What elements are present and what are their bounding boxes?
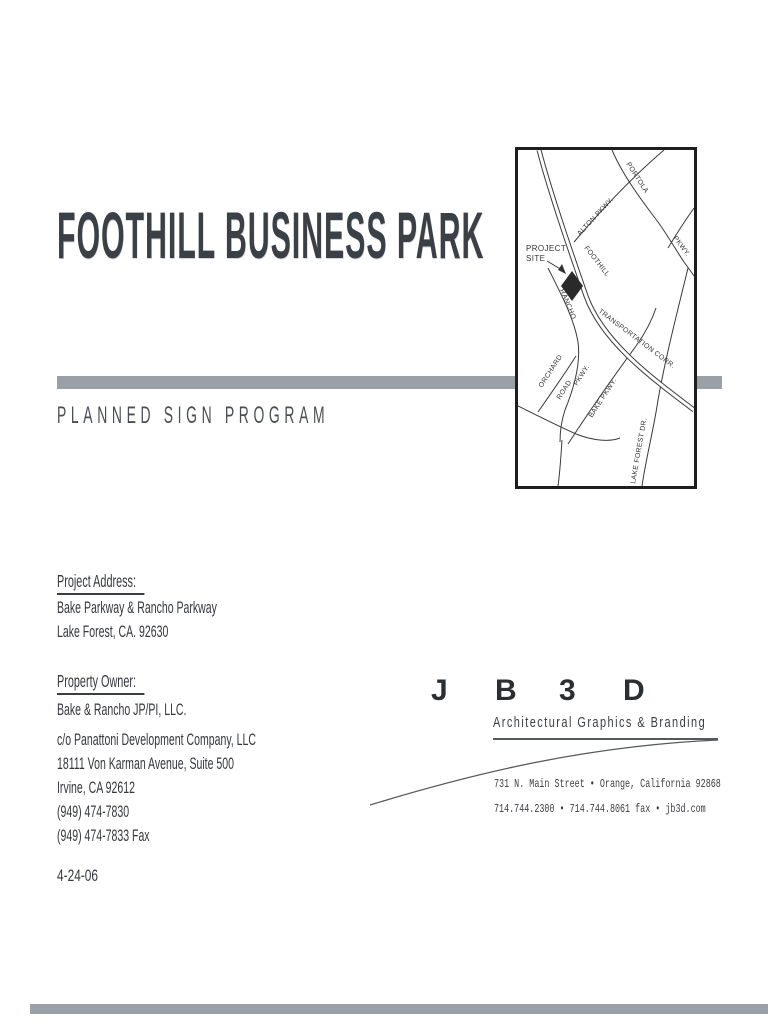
property-owner-heading: Property Owner: [57,670,145,695]
map-label-foothill: FOOTHILL [582,245,610,278]
jb3d-logo: JB3D [431,676,687,706]
jb3d-swoosh-curve [370,740,718,805]
jb3d-letter-d: D [623,676,687,706]
document-page: FOOTHILL BUSINESS PARK PLANNED SIGN PROG… [0,0,770,1024]
map-label-lake-forest-dr: LAKE FOREST DR. [630,418,648,485]
map-label-alton-pkwy: ALTON PKWY. [576,196,615,237]
map-label-orchard: ORCHARD [538,354,564,389]
road-bottom-stub [558,440,562,486]
jb3d-address-line1: 731 N. Main Street • Orange, California … [494,776,721,792]
page-title: FOOTHILL BUSINESS PARK [57,202,484,268]
jb3d-swoosh [368,734,720,810]
jb3d-letter-b: B [495,676,559,706]
vicinity-map-drawing: PROJECT SITE ALTON PKWY. PORTOLA PKWY. F… [518,150,694,486]
project-address-block: Bake Parkway & Rancho Parkway Lake Fores… [57,596,217,644]
jb3d-address-line2: 714.744.2300 • 714.744.8061 fax • jb3d.c… [494,801,706,817]
property-owner-line: (949) 474-7830 [57,800,256,824]
map-label-site: SITE [526,254,545,263]
jb3d-letter-j: J [431,676,495,706]
jb3d-tagline: Architectural Graphics & Branding [493,714,706,732]
property-owner-block: c/o Panattoni Development Company, LLC 1… [57,728,256,848]
road-portola [612,150,694,280]
page-subtitle: PLANNED SIGN PROGRAM [57,403,329,429]
map-label-project: PROJECT [526,244,566,253]
jb3d-letter-3: 3 [559,676,623,706]
road-foothill-corridor-casing [539,150,694,410]
property-owner-line: (949) 474-7833 Fax [57,824,256,848]
property-owner-line: 18111 Von Karman Avenue, Suite 500 [57,752,256,776]
road-foothill-corridor-inner [539,150,694,410]
road-bottom-left [518,406,620,440]
property-owner-line: Irvine, CA 92612 [57,776,256,800]
document-date: 4-24-06 [57,866,98,886]
property-owner-heading-text: Property Owner: [57,670,145,695]
property-owner-name: Bake & Rancho JP/PI, LLC. [57,699,186,721]
project-address-line: Lake Forest, CA. 92630 [57,620,217,644]
map-label-bake-pkwy: BAKE PKWY. [588,377,619,419]
project-address-line: Bake Parkway & Rancho Parkway [57,596,217,620]
project-address-heading-text: Project Address: [57,570,145,595]
project-address-heading: Project Address: [57,570,145,595]
footer-bar [30,1004,768,1014]
project-site-arrowhead [558,264,566,274]
property-owner-line: c/o Panattoni Development Company, LLC [57,728,256,752]
vicinity-map: PROJECT SITE ALTON PKWY. PORTOLA PKWY. F… [515,147,697,489]
